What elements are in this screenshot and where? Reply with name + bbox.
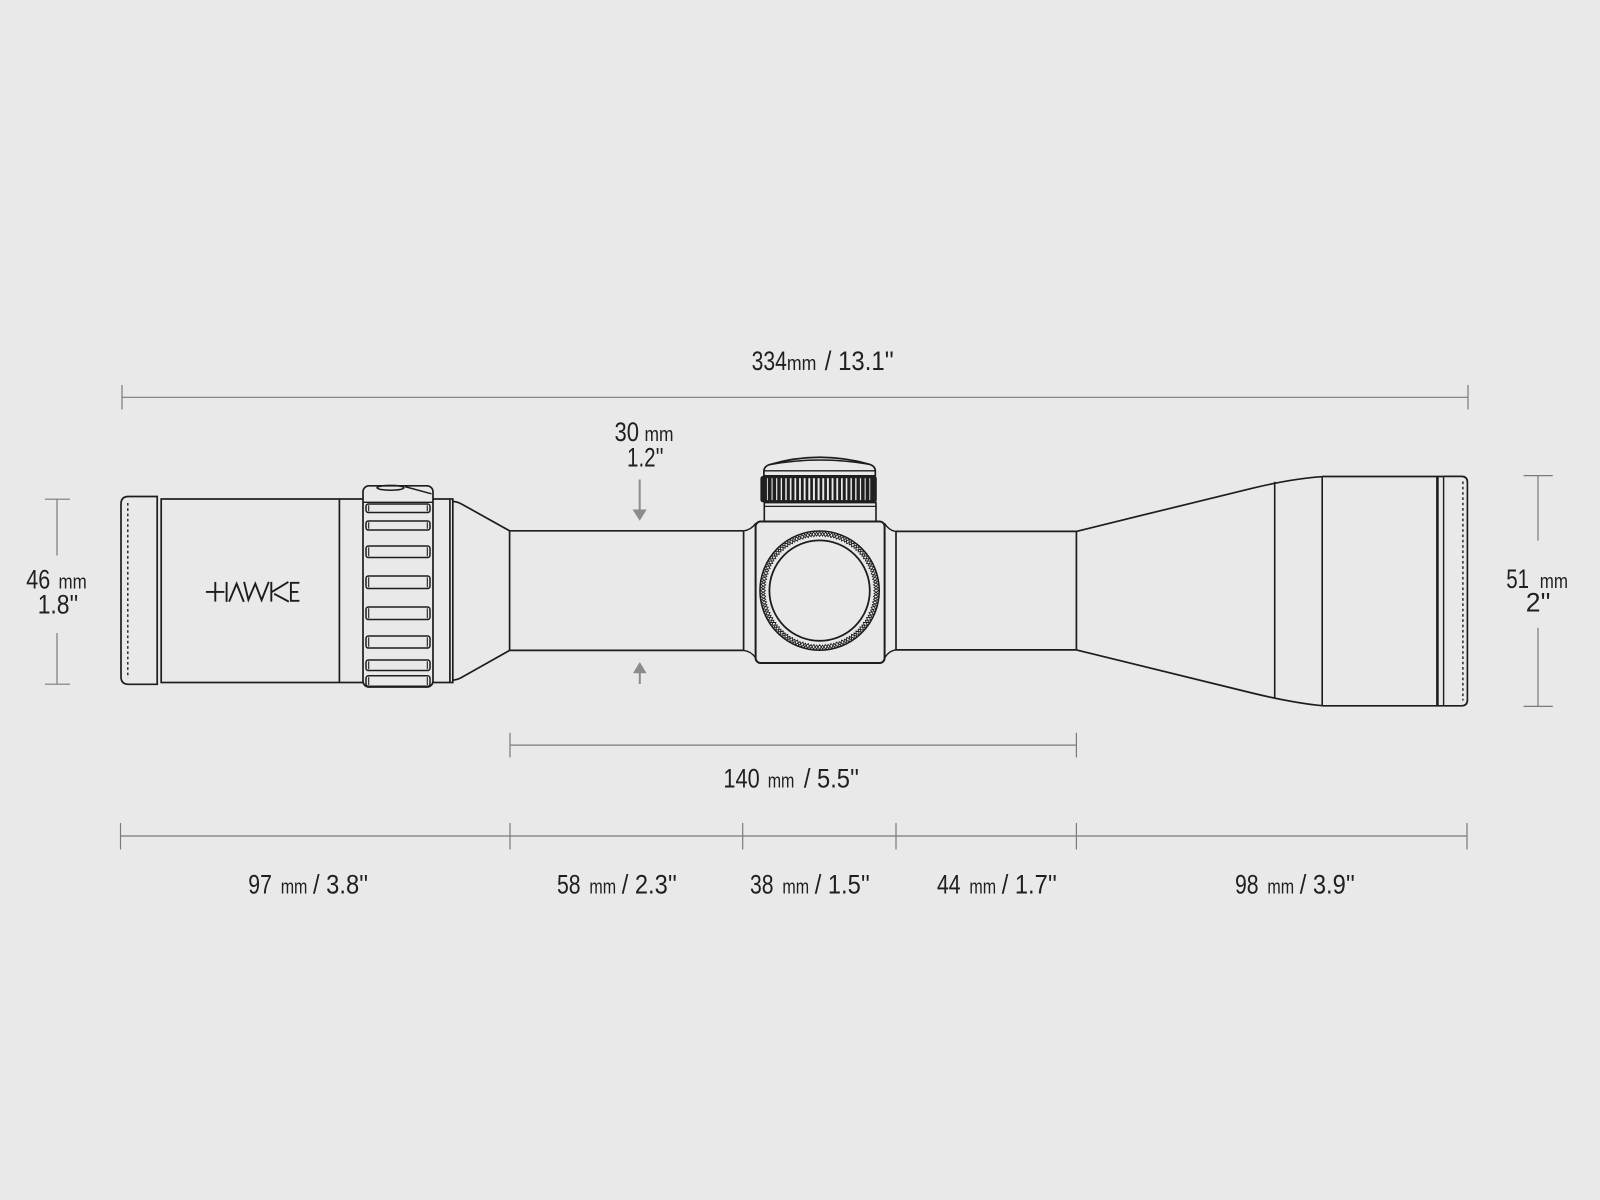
svg-text:38: 38: [750, 869, 774, 899]
svg-text:/ 1.7'': / 1.7'': [1002, 869, 1057, 899]
svg-text:140: 140: [723, 764, 759, 794]
svg-text:/ 3.8'': / 3.8'': [313, 869, 368, 899]
svg-text:334: 334: [752, 346, 787, 376]
svg-text:/ 5.5'': / 5.5'': [804, 764, 859, 794]
svg-text:mm: mm: [787, 352, 817, 375]
svg-text:98: 98: [1235, 869, 1259, 899]
svg-text:2'': 2'': [1526, 588, 1551, 618]
svg-text:97: 97: [248, 869, 272, 899]
svg-text:44: 44: [937, 869, 961, 899]
svg-text:/ 13.1'': / 13.1'': [825, 346, 894, 376]
svg-text:1.2'': 1.2'': [627, 443, 664, 473]
svg-text:mm: mm: [1267, 875, 1294, 898]
svg-text:1.8'': 1.8'': [38, 590, 79, 620]
svg-text:mm: mm: [782, 875, 809, 898]
svg-text:/ 2.3'': / 2.3'': [622, 869, 677, 899]
svg-text:mm: mm: [969, 875, 996, 898]
svg-text:mm: mm: [281, 875, 308, 898]
svg-text:mm: mm: [589, 875, 616, 898]
svg-text:mm: mm: [768, 770, 795, 793]
svg-text:/ 3.9'': / 3.9'': [1300, 869, 1355, 899]
svg-text:58: 58: [557, 869, 581, 899]
svg-text:/ 1.5'': / 1.5'': [815, 869, 870, 899]
